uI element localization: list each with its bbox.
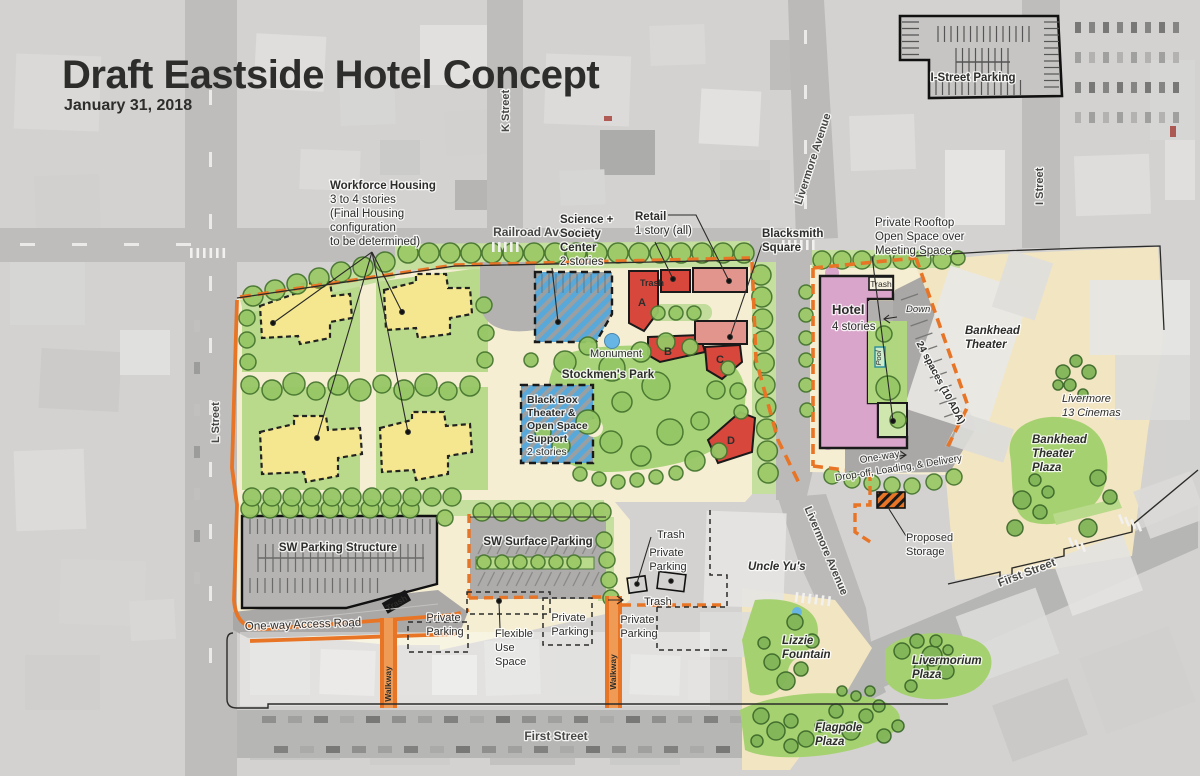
k-street-label: K Street <box>500 89 512 132</box>
blacksmith-building-n <box>693 268 747 292</box>
page-date: January 31, 2018 <box>64 97 192 114</box>
walkway-label-east: Walkway <box>608 654 618 690</box>
sw-surface-parking-label: SW Surface Parking <box>483 536 592 548</box>
stockmens-park-label: Stockmen's Park <box>562 369 655 381</box>
trash-label-1: Trash <box>657 529 685 541</box>
down-ramp-label: Down <box>906 304 930 315</box>
i-street-label: I Street <box>1034 167 1046 205</box>
pool-label: Pool <box>874 350 883 365</box>
blacksmith-building-s <box>695 321 747 344</box>
uncle-yus-label: Uncle Yu's <box>748 561 806 573</box>
science-society-center-building <box>535 272 612 342</box>
retail-building-a2 <box>661 270 690 292</box>
sw-parking-structure-label: SW Parking Structure <box>279 542 397 554</box>
proposed-storage-box <box>877 492 905 508</box>
trash-label-2: Trash <box>644 596 672 608</box>
site-plan-map: Draft Eastside Hotel Concept January 31,… <box>0 0 1200 776</box>
monument-label: Monument <box>590 348 642 360</box>
retail-trash-label: Trash <box>640 278 664 288</box>
building-a-label: A <box>638 297 646 309</box>
monument-marker <box>605 334 620 349</box>
building-c-label: C <box>716 354 724 366</box>
building-d-label: D <box>727 435 735 447</box>
page-title: Draft Eastside Hotel Concept <box>62 53 599 97</box>
i-street-parking-label: I-Street Parking <box>931 72 1016 84</box>
building-b-label: B <box>664 346 672 358</box>
l-street-label: L Street <box>210 402 222 443</box>
first-street-label-w: First Street <box>524 729 587 743</box>
hotel-trash-label: Trash <box>870 279 892 289</box>
site-plan-page: Draft Eastside Hotel Concept January 31,… <box>0 0 1200 776</box>
walkway-label-west: Walkway <box>383 666 393 702</box>
walkway-east-center <box>609 596 618 708</box>
center-parking-stub <box>480 262 535 331</box>
